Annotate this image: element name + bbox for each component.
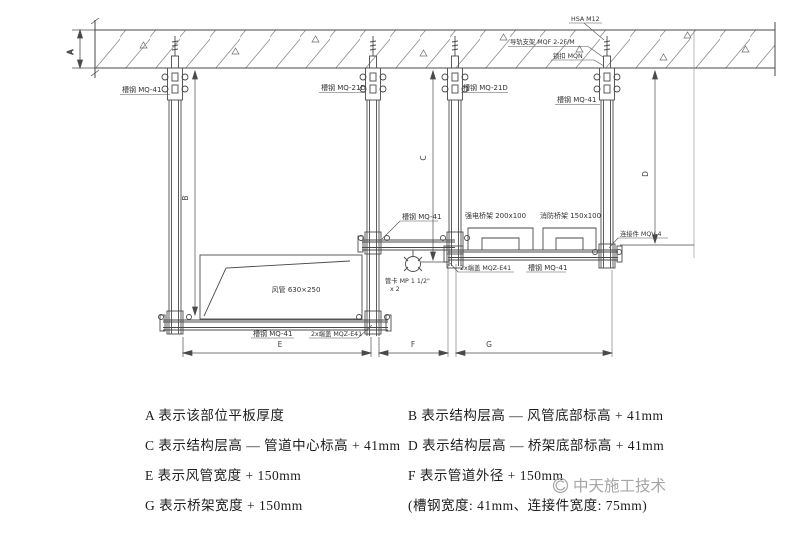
- dim-letter-f: F: [411, 340, 415, 349]
- pipe-section: [406, 257, 421, 272]
- duct-label: 风管 630×250: [272, 285, 321, 294]
- hanger-mid-2: [442, 36, 468, 266]
- hanger-right: [594, 36, 620, 268]
- watermark: 中天施工技术: [552, 474, 666, 496]
- tray-assembly: 强电桥架 200x100 消防桥架 150x100: [444, 211, 622, 268]
- dim-letter-g: G: [486, 340, 492, 349]
- label-channel-mq41-tray: 槽钢 MQ-41: [528, 263, 567, 272]
- dim-letter-c: C: [419, 155, 428, 160]
- label-connector-mqv: 连接件 MQV-4: [620, 229, 662, 238]
- label-rail-support: 导轨支架 MQF 2-2F/M: [510, 37, 575, 46]
- hanger-left: [162, 36, 188, 334]
- technical-drawing: A: [0, 0, 800, 392]
- label-anchor-hsa: HSA M12: [571, 16, 600, 23]
- dim-letter-a: A: [66, 49, 75, 55]
- label-channel-mq41-mid: 槽钢 MQ-41: [402, 212, 441, 221]
- label-channel-mq21d-1: 槽钢 MQ-21D: [321, 83, 366, 92]
- legend-item-e: E 表示风管宽度 + 150mm: [145, 464, 301, 484]
- pipe-assembly: 管卡 MP 1 1/2" x 2: [358, 232, 470, 293]
- cable-tray-fire: [543, 228, 596, 250]
- legend-item-d: D 表示结构层高 — 桥架底部标高 + 41mm: [408, 434, 664, 454]
- pipe-clamp-label-line2: x 2: [390, 286, 400, 293]
- label-endcap-duct: 2x端盖 MQZ-E41: [311, 329, 362, 338]
- pipe-clamp-label-line1: 管卡 MP 1 1/2": [385, 276, 430, 285]
- duct-assembly: 风管 630×250: [159, 255, 392, 334]
- label-lock-mqn: 锁扣 MQN: [553, 51, 583, 60]
- dim-letter-b: B: [181, 195, 190, 200]
- cable-tray-strong: [468, 228, 533, 250]
- dim-letter-e: E: [278, 340, 283, 349]
- dim-letter-d: D: [641, 171, 650, 177]
- dimension-a: A: [66, 30, 95, 68]
- tray-strong-label: 强电桥架 200x100: [465, 211, 526, 220]
- label-channel-mq41-right: 槽钢 MQ-41: [557, 95, 596, 104]
- label-endcap-tray: 2x端盖 MQZ-E41: [460, 263, 511, 272]
- label-channel-mq21d-2: 槽钢 MQ-21D: [463, 83, 508, 92]
- drawing-page: A: [0, 0, 800, 536]
- tray-fire-label: 消防桥架 150x100: [540, 211, 601, 220]
- legend-item-g: G 表示桥架宽度 + 150mm: [145, 494, 303, 514]
- label-channel-mq41-duct: 槽钢 MQ-41: [253, 329, 292, 338]
- legend-item-f: F 表示管道外径 + 150mm: [408, 464, 564, 484]
- label-channel-mq41-left: 槽钢 MQ-41: [122, 85, 161, 94]
- vertical-dimensions: B C D: [181, 71, 694, 315]
- watermark-logo-icon: [552, 477, 569, 494]
- legend-item-b: B 表示结构层高 — 风管底部标高 + 41mm: [408, 404, 664, 424]
- legend-item-c: C 表示结构层高 — 管道中心标高 + 41mm: [145, 434, 401, 454]
- watermark-text: 中天施工技术: [573, 474, 666, 496]
- legend-item-note: (槽钢宽度: 41mm、连接件宽度: 75mm): [408, 494, 647, 514]
- legend-item-a: A 表示该部位平板厚度: [145, 404, 284, 424]
- hanger-mid-1: [360, 36, 386, 336]
